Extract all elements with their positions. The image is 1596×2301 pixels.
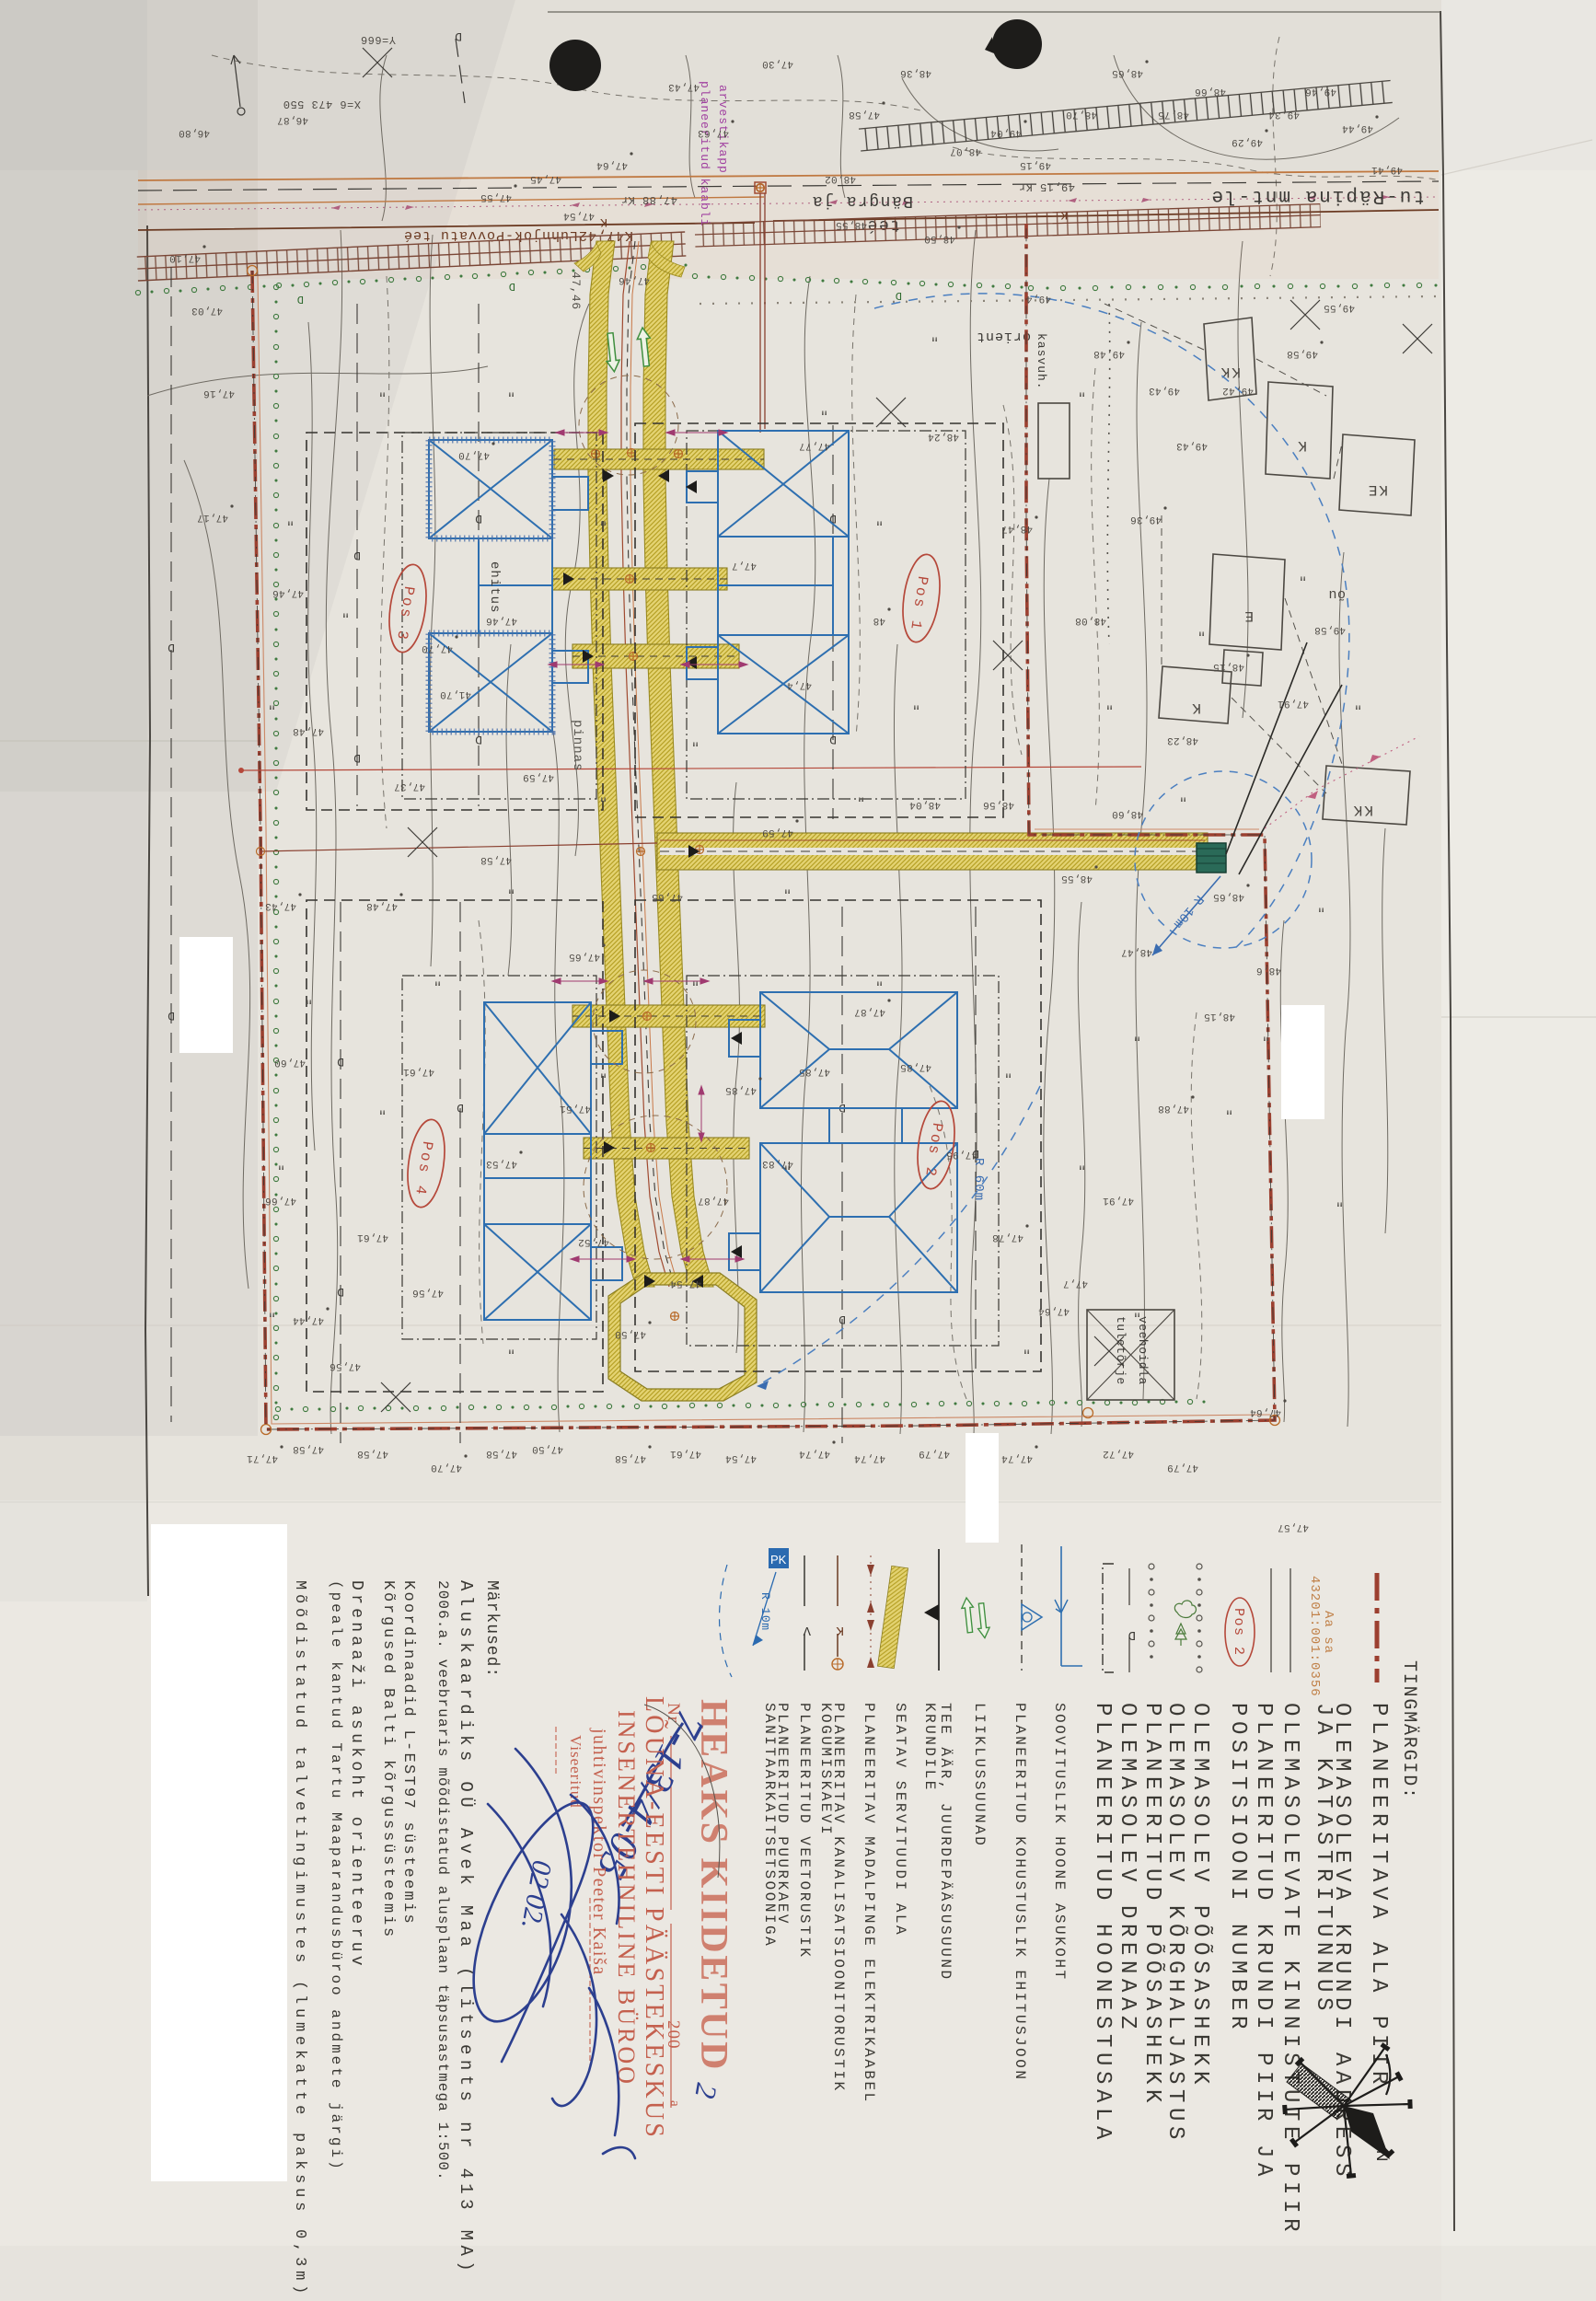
svg-text:TEE ÄÄR, JUURDEPÄÄSUSUUND: TEE ÄÄR, JUURDEPÄÄSUSUUND (937, 1703, 954, 1982)
svg-text:47,54: 47,54 (563, 210, 595, 221)
svg-text:47,74: 47,74 (1001, 1452, 1033, 1463)
svg-text:tuletõrje: tuletõrje (1114, 1316, 1128, 1385)
svg-text:D: D (353, 549, 361, 562)
svg-text:K: K (836, 1623, 844, 1637)
svg-text:49,48: 49,48 (1093, 348, 1125, 359)
svg-text:49,43: 49,43 (1149, 385, 1180, 396)
svg-text:": " (1317, 897, 1325, 913)
svg-text:": " (1004, 1063, 1012, 1079)
svg-text:D: D (337, 1055, 344, 1069)
svg-text:48,75: 48,75 (1158, 109, 1189, 120)
svg-text:48,50: 48,50 (924, 233, 955, 244)
svg-text:": " (1105, 695, 1114, 711)
svg-text:": " (599, 1063, 607, 1079)
svg-text:47,51: 47,51 (560, 1103, 591, 1114)
svg-text:48,08: 48,08 (1075, 615, 1106, 626)
svg-text:": " (1354, 695, 1362, 711)
svg-text:47,50: 47,50 (615, 1328, 646, 1339)
svg-text:47,85: 47,85 (900, 1061, 931, 1072)
svg-text:48,70: 48,70 (1066, 109, 1097, 120)
svg-text:INSENERTEHNILINE BÜROO: INSENERTEHNILINE BÜROO (613, 1710, 640, 2087)
svg-text:": " (341, 603, 350, 619)
svg-text:D: D (838, 1312, 846, 1326)
svg-text:D: D (168, 1009, 175, 1023)
svg-text:41,70: 41,70 (440, 688, 471, 700)
svg-text:": " (507, 879, 515, 895)
svg-text:PLANEERITAV MADALPINGE ELEKTRI: PLANEERITAV MADALPINGE ELEKTRIKAABEL (861, 1703, 877, 2104)
svg-text:kasvuh.: kasvuh. (1035, 333, 1048, 390)
svg-text:48,47: 48,47 (1121, 946, 1152, 957)
svg-text:D: D (457, 1101, 464, 1115)
svg-text:47,74: 47,74 (854, 1452, 885, 1463)
svg-text:": " (1133, 1302, 1141, 1318)
svg-text:47,70: 47,70 (458, 449, 490, 460)
svg-text:D: D (508, 280, 515, 293)
svg-text:LIIKLUSSUUNAD: LIIKLUSSUUNAD (971, 1703, 988, 1847)
svg-text:47,46: 47,46 (619, 274, 650, 285)
svg-text:49,44: 49,44 (1342, 122, 1373, 133)
svg-text:TINGMÄRGID:: TINGMÄRGID: (1398, 1660, 1419, 1800)
svg-text:47,95: 47,95 (946, 1149, 977, 1160)
svg-text:49,15 Kr: 49,15 Kr (1018, 180, 1075, 193)
svg-text:47,03: 47,03 (191, 305, 223, 316)
svg-text:48,15: 48,15 (1204, 1011, 1235, 1022)
svg-text:Drenaaži asukoht orienteeruv: Drenaaži asukoht orienteeruv (347, 1580, 365, 1970)
svg-text:49,15: 49,15 (1020, 159, 1051, 170)
svg-text:PLANEERITUD PÕÕSASHEKK: PLANEERITUD PÕÕSASHEKK (1139, 1703, 1165, 2108)
svg-text:LÕUNA-EESTI PÄÄSTEKESKUS: LÕUNA-EESTI PÄÄSTEKESKUS (640, 1696, 668, 2140)
svg-text:PLANEERITUD KRUNDI PIIR JA: PLANEERITUD KRUNDI PIIR JA (1251, 1703, 1276, 2181)
svg-text:": " (1179, 787, 1187, 803)
svg-text:47,45: 47,45 (530, 173, 561, 184)
svg-text:47,58: 47,58 (293, 1443, 324, 1454)
svg-text:47,88: 47,88 (1158, 1103, 1189, 1114)
svg-text:48,23: 48,23 (1167, 734, 1198, 746)
svg-text:49,42: 49,42 (1222, 385, 1254, 396)
svg-text:planeeritud kaabli: planeeritud kaabli (698, 81, 711, 226)
svg-text:47,17: 47,17 (197, 512, 228, 523)
svg-text:": " (599, 787, 607, 803)
svg-text:PK: PK (770, 1553, 787, 1567)
svg-text:49,55: 49,55 (1324, 302, 1355, 313)
svg-text:2006.a. veebruaris mõõdistatud: 2006.a. veebruaris mõõdistatud alusplaan… (434, 1580, 451, 2181)
svg-text:47,74: 47,74 (799, 1448, 830, 1459)
svg-text:48: 48 (873, 615, 885, 626)
svg-text:OLEMASOLEVATE KINNISTUTE PIIR: OLEMASOLEVATE KINNISTUTE PIIR (1278, 1703, 1302, 2237)
svg-text:47,7: 47,7 (732, 560, 757, 571)
svg-text:": " (507, 1339, 515, 1355)
svg-text:49,34: 49,34 (1268, 109, 1300, 120)
svg-text:47,85: 47,85 (799, 1066, 830, 1077)
svg-text:Bängra ja: Bängra ja (811, 191, 913, 210)
svg-text:": " (378, 382, 387, 398)
svg-text:49,41: 49,41 (1371, 164, 1403, 175)
svg-text:47,54: 47,54 (670, 1278, 701, 1289)
svg-text:Aluskaardiks OÜ Avek Maa (lits: Aluskaardiks OÜ Avek Maa (litsents nr 41… (456, 1580, 476, 2276)
svg-text:48,66: 48,66 (1195, 86, 1226, 97)
svg-text:Pos 2: Pos 2 (1231, 1608, 1246, 1657)
svg-text:47,83: 47,83 (762, 1158, 793, 1169)
svg-text:": " (268, 1302, 276, 1318)
svg-text:a: a (667, 2100, 682, 2108)
svg-text:": " (691, 971, 700, 987)
svg-text:": " (691, 732, 700, 747)
svg-text:47,46: 47,46 (272, 587, 304, 598)
svg-text:47,50: 47,50 (532, 1443, 563, 1454)
svg-text:SOOVITUSLIK HOONE ASUKOHT: SOOVITUSLIK HOONE ASUKOHT (1051, 1703, 1068, 1982)
svg-text:48,24: 48,24 (928, 431, 959, 442)
svg-text:KRUNDILE: KRUNDILE (921, 1703, 938, 1792)
svg-text:48,47: 48,47 (1001, 523, 1033, 534)
svg-text:D: D (296, 293, 304, 306)
svg-text:K: K (600, 215, 607, 229)
svg-text:47,53: 47,53 (486, 1158, 517, 1169)
svg-text:(peale kantud Tartu Maaparandu: (peale kantud Tartu Maaparandusbüroo and… (328, 1580, 344, 2172)
svg-text:47,64: 47,64 (1250, 1406, 1281, 1417)
svg-text:47,61: 47,61 (670, 1448, 701, 1459)
svg-text:ehitus: ehitus (487, 561, 502, 613)
svg-text:": " (1133, 1026, 1141, 1042)
svg-text:Märkused:: Märkused: (482, 1580, 501, 1678)
svg-text:47,79: 47,79 (919, 1448, 950, 1459)
svg-text:R 60m: R 60m (971, 1158, 986, 1201)
svg-text:47,77: 47,77 (799, 440, 830, 451)
svg-text:47,43: 47,43 (265, 900, 296, 911)
svg-text:pinnas: pinnas (570, 720, 584, 771)
svg-text:JA KATASTRITUNNUS: JA KATASTRITUNNUS (1311, 1703, 1336, 2016)
svg-text:": " (875, 971, 884, 987)
svg-text:": " (1225, 1100, 1233, 1116)
svg-text:47,58: 47,58 (357, 1448, 388, 1459)
svg-text:": " (599, 511, 607, 526)
svg-text:PLANEERITUD HOONESTUSALA: PLANEERITUD HOONESTUSALA (1090, 1703, 1115, 2145)
svg-text:KE: KE (1367, 481, 1388, 498)
svg-text:": " (277, 1155, 285, 1171)
svg-text:47,4: 47,4 (787, 679, 812, 690)
svg-text:Kõrgused Balti kõrgussüsteemis: Kõrgused Balti kõrgussüsteemis (379, 1580, 397, 1939)
svg-text:47,65: 47,65 (652, 891, 683, 902)
svg-text:47,54: 47,54 (725, 1452, 757, 1463)
svg-text:Mõõdistatud talvetingimustes (: Mõõdistatud talvetingimustes (lumekatte … (291, 1580, 308, 2298)
svg-text:POSITSIOONI NUMBER: POSITSIOONI NUMBER (1225, 1703, 1250, 2034)
svg-text:veehoidla: veehoidla (1136, 1316, 1150, 1385)
svg-text:PLANEERITAVA ALA PIIR: PLANEERITAVA ALA PIIR (1366, 1703, 1391, 2089)
svg-text:": " (857, 787, 865, 803)
svg-text:46,87: 46,87 (277, 114, 308, 125)
svg-text:PLANEERITUD VEETORUSTIK: PLANEERITUD VEETORUSTIK (796, 1703, 813, 1959)
svg-text:49,29: 49,29 (1232, 136, 1263, 147)
svg-text:47,60: 47,60 (274, 1057, 306, 1068)
svg-text:": " (1299, 566, 1307, 582)
svg-text:47,64: 47,64 (1038, 1305, 1070, 1316)
svg-text:D: D (353, 751, 361, 765)
svg-text:49,58: 49,58 (1287, 348, 1318, 359)
svg-text:47,91: 47,91 (1278, 698, 1309, 709)
svg-text:": " (1078, 1155, 1086, 1171)
svg-text:": " (286, 511, 295, 526)
svg-text:47,58: 47,58 (480, 854, 512, 865)
svg-text:48,6: 48,6 (1256, 965, 1281, 976)
svg-text:47,61: 47,61 (357, 1231, 388, 1243)
svg-text:48,56: 48,56 (983, 799, 1014, 810)
svg-text:47,85: 47,85 (725, 1084, 757, 1095)
svg-text:": " (378, 1100, 387, 1116)
svg-text:": " (507, 382, 515, 398)
svg-text:K: K (1192, 700, 1201, 716)
svg-text:D: D (168, 641, 175, 654)
svg-text:R 10m: R 10m (758, 1592, 772, 1631)
svg-text:47,30: 47,30 (762, 58, 793, 69)
svg-text:tu-Räpina mnt-le: tu-Räpina mnt-le (1209, 185, 1425, 206)
svg-text:": " (1197, 621, 1206, 637)
svg-text:47,55: 47,55 (480, 191, 512, 202)
svg-text:48,65: 48,65 (1112, 67, 1143, 78)
svg-text:47,58: 47,58 (849, 109, 880, 120)
svg-text:D: D (829, 733, 837, 746)
svg-text:47,63: 47,63 (698, 127, 729, 138)
svg-text:OLEMASOLEV DRENAAZ: OLEMASOLEV DRENAAZ (1115, 1703, 1139, 2034)
svg-text:D: D (895, 289, 902, 302)
svg-text:D: D (475, 512, 482, 526)
svg-text:KK: KK (1352, 802, 1373, 818)
svg-text:47,58: 47,58 (486, 1448, 517, 1459)
svg-text:47,48: 47,48 (293, 725, 324, 736)
svg-text:47,57: 47,57 (1278, 1521, 1309, 1532)
svg-text:KOGUMISKAEVI: KOGUMISKAEVI (817, 1703, 834, 1836)
svg-text:47,56: 47,56 (330, 1360, 361, 1371)
svg-text:": " (1262, 1026, 1270, 1042)
svg-text:47,44: 47,44 (293, 1314, 324, 1325)
svg-text:49,43: 49,43 (1176, 440, 1208, 451)
svg-text:47,87: 47,87 (698, 1195, 729, 1206)
svg-text:47,79: 47,79 (1167, 1462, 1198, 1473)
svg-text:49,58: 49,58 (1314, 624, 1346, 635)
svg-text:47,7: 47,7 (1063, 1278, 1088, 1289)
svg-text:47,61: 47,61 (403, 1066, 434, 1077)
svg-text:PLANEERITUD KOHUSTUSLIK EHITUS: PLANEERITUD KOHUSTUSLIK EHITUSJOON (1012, 1703, 1028, 2081)
svg-text:49,46: 49,46 (1305, 86, 1336, 97)
svg-text:": " (783, 879, 792, 895)
svg-text:48,60: 48,60 (1112, 808, 1143, 819)
svg-text:N: N (1373, 2150, 1391, 2161)
svg-text:D: D (337, 1285, 344, 1299)
svg-text:X=6 473 550: X=6 473 550 (283, 98, 361, 110)
svg-text:D: D (455, 29, 462, 43)
svg-text:49,04: 49,04 (990, 127, 1022, 138)
svg-text:": " (1023, 1339, 1031, 1355)
svg-text:47,48: 47,48 (366, 900, 398, 911)
svg-text:47,70: 47,70 (431, 1462, 462, 1473)
svg-text:48,65: 48,65 (1213, 891, 1244, 902)
svg-text:D: D (1128, 1627, 1136, 1642)
svg-text:47,78: 47,78 (992, 1231, 1024, 1243)
svg-text:V: V (803, 1623, 811, 1637)
svg-text:47,16: 47,16 (203, 387, 235, 399)
svg-text:47,10: 47,10 (169, 252, 201, 263)
svg-text:": " (912, 695, 920, 711)
svg-text:47,66: 47,66 (265, 1195, 296, 1206)
svg-text:E: E (1244, 607, 1254, 624)
svg-text:47,58: 47,58 (615, 1452, 646, 1463)
svg-text:48,36: 48,36 (900, 67, 931, 78)
svg-text:47,52: 47,52 (578, 1236, 609, 1247)
svg-text:Koordinaadid L-EST97 süsteemis: Koordinaadid L-EST97 süsteemis (399, 1580, 417, 1925)
svg-text:47,70: 47,70 (422, 642, 453, 653)
svg-text:": " (875, 511, 884, 526)
svg-text:": " (931, 327, 939, 342)
svg-text:": " (305, 989, 313, 1005)
svg-text:48,15: 48,15 (1213, 661, 1244, 672)
svg-text:K: K (1298, 437, 1307, 454)
svg-text:47,72: 47,72 (1103, 1448, 1134, 1459)
svg-text:SEATAV SERVITUUDI ALA: SEATAV SERVITUUDI ALA (892, 1703, 908, 1937)
svg-text:47,64: 47,64 (596, 159, 628, 170)
svg-text:47,71: 47,71 (247, 1452, 278, 1463)
svg-text:47,65: 47,65 (569, 951, 600, 962)
svg-text:46,80: 46,80 (179, 127, 210, 138)
svg-text:47,37: 47,37 (394, 780, 425, 792)
svg-text:": " (268, 695, 276, 711)
svg-text:orient: orient (976, 329, 1031, 344)
svg-text:49,36: 49,36 (1130, 514, 1162, 525)
svg-text:KK: KK (1220, 364, 1241, 380)
svg-text:47,59: 47,59 (762, 827, 793, 838)
svg-text:47,46: 47,46 (486, 615, 517, 626)
svg-text:43201:001:0356: 43201:001:0356 (1307, 1576, 1322, 1697)
svg-text:": " (1078, 382, 1086, 398)
svg-text:SANITAARKAITSETSOONIGA: SANITAARKAITSETSOONIGA (761, 1703, 778, 1948)
svg-text:48,55: 48,55 (836, 219, 867, 230)
svg-text:juhtivinspektor Peeter Kaiša: juhtivinspektor Peeter Kaiša (589, 1728, 609, 1976)
svg-text:47,88 Kr: 47,88 Kr (620, 193, 677, 206)
svg-text:47,56: 47,56 (412, 1287, 444, 1298)
svg-text:": " (1336, 1192, 1344, 1208)
svg-text:OLEMASOLEV KÕRGHALJASTUS: OLEMASOLEV KÕRGHALJASTUS (1162, 1703, 1188, 2145)
svg-text:47,87: 47,87 (854, 1006, 885, 1017)
svg-text:48,55: 48,55 (1061, 873, 1093, 884)
svg-text:47,91: 47,91 (1103, 1195, 1134, 1206)
svg-text:47,46: 47,46 (569, 272, 583, 310)
svg-text:OLEMASOLEV PÕÕSASHEKK: OLEMASOLEV PÕÕSASHEKK (1187, 1703, 1213, 2089)
svg-text:48,02: 48,02 (825, 173, 856, 184)
svg-text:49,4: 49,4 (1026, 293, 1051, 304)
svg-text:Aa sa: Aa sa (1321, 1611, 1336, 1654)
svg-text:48,04: 48,04 (909, 799, 941, 810)
svg-text:47,43: 47,43 (668, 81, 700, 92)
svg-text:": " (820, 400, 828, 416)
svg-text:õu: õu (1328, 586, 1346, 602)
svg-text:47,59: 47,59 (523, 771, 554, 782)
svg-text:": " (434, 971, 442, 987)
svg-text:Y=666: Y=666 (360, 33, 396, 46)
svg-text:48,07: 48,07 (950, 145, 981, 156)
